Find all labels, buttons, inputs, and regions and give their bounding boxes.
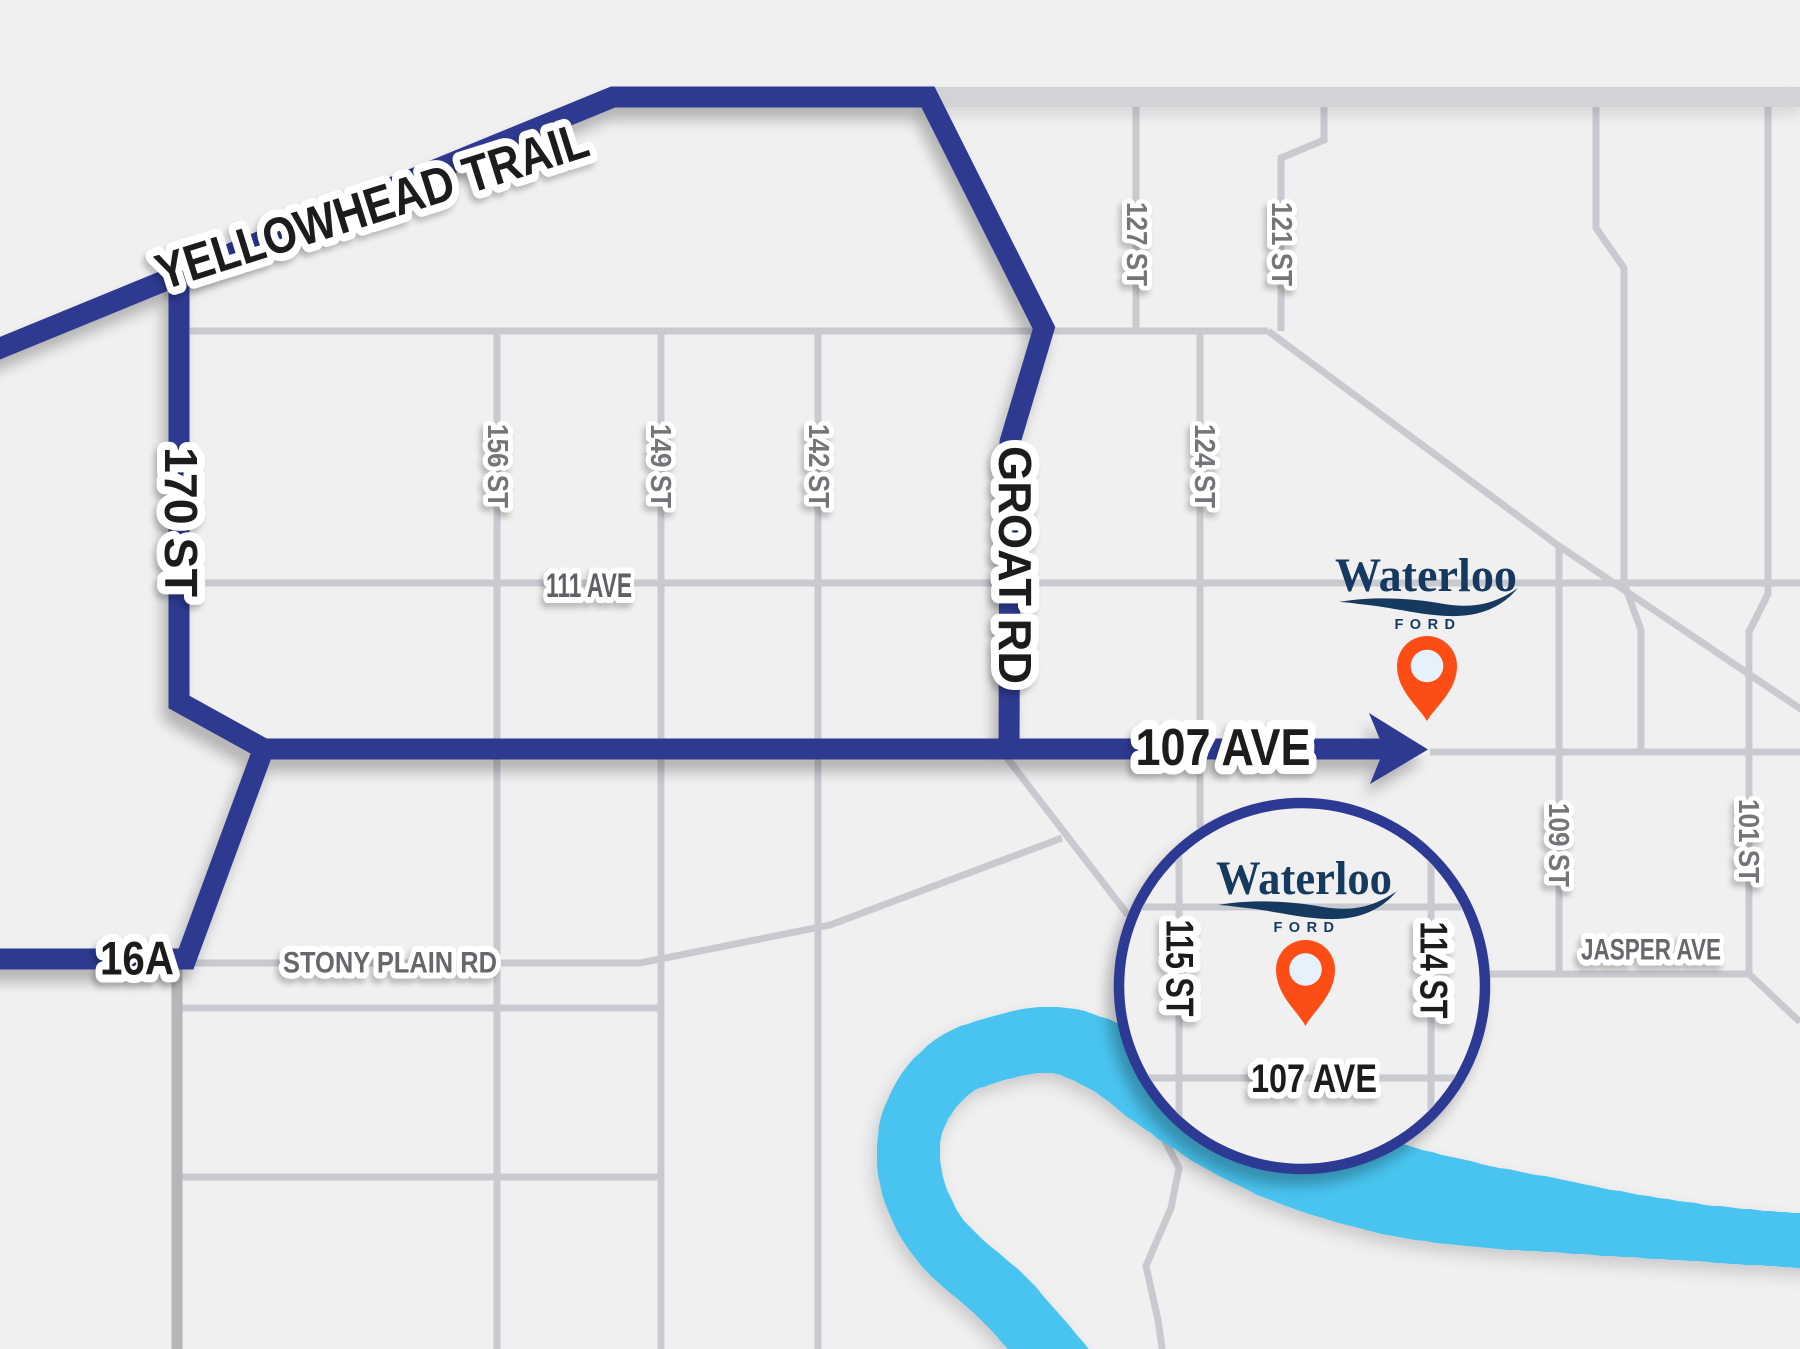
svg-text:Waterloo: Waterloo bbox=[1335, 549, 1517, 602]
svg-text:107 AVE: 107 AVE bbox=[1136, 719, 1311, 777]
svg-text:127 ST: 127 ST bbox=[1120, 202, 1152, 287]
svg-text:109 ST: 109 ST bbox=[1542, 803, 1574, 888]
svg-text:GROAT RD: GROAT RD bbox=[989, 446, 1041, 684]
svg-text:101 ST: 101 ST bbox=[1732, 799, 1764, 884]
svg-text:STONY PLAIN RD: STONY PLAIN RD bbox=[283, 947, 497, 980]
svg-text:124 ST: 124 ST bbox=[1188, 424, 1220, 509]
svg-text:170 ST: 170 ST bbox=[155, 447, 207, 597]
svg-text:16A: 16A bbox=[100, 932, 174, 985]
svg-text:FORD: FORD bbox=[1273, 920, 1340, 936]
svg-text:142 ST: 142 ST bbox=[802, 424, 834, 509]
svg-text:114 ST: 114 ST bbox=[1412, 922, 1455, 1019]
svg-text:149 ST: 149 ST bbox=[644, 424, 676, 509]
svg-text:JASPER AVE: JASPER AVE bbox=[1581, 934, 1721, 967]
svg-text:FORD: FORD bbox=[1394, 617, 1461, 633]
svg-text:115 ST: 115 ST bbox=[1158, 920, 1201, 1017]
svg-text:121 ST: 121 ST bbox=[1265, 202, 1297, 287]
svg-text:111 AVE: 111 AVE bbox=[546, 567, 632, 605]
svg-text:Waterloo: Waterloo bbox=[1216, 852, 1392, 905]
svg-text:107 AVE: 107 AVE bbox=[1251, 1057, 1377, 1101]
svg-text:156 ST: 156 ST bbox=[481, 424, 513, 509]
